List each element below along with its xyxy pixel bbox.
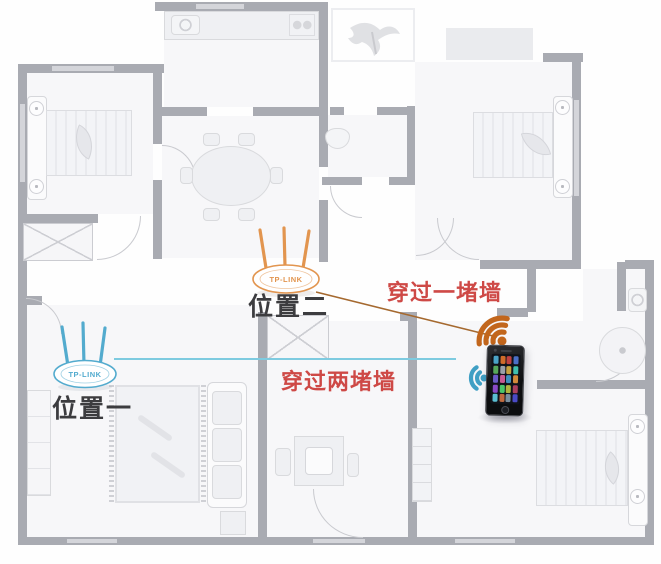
pillow (630, 419, 645, 434)
wall (527, 269, 536, 312)
wall (408, 312, 417, 542)
phone-earpiece (501, 349, 512, 352)
rug-fringe (201, 385, 206, 503)
wall (155, 107, 207, 116)
side-table (220, 511, 246, 535)
wall (537, 380, 647, 389)
chair (275, 448, 291, 476)
phone-app-grid (492, 356, 518, 403)
wall (258, 312, 267, 540)
wall (319, 200, 328, 262)
wall (480, 260, 578, 269)
plant (342, 10, 406, 65)
window (574, 100, 579, 196)
wall (153, 64, 162, 144)
tv-cabinet (27, 390, 51, 496)
wall (377, 107, 408, 115)
washbasin (628, 288, 647, 312)
sofa-cushion (212, 428, 242, 462)
label-through-one-wall: 穿过一堵墙 (387, 275, 502, 307)
floor-plan-diagram: TP-LINK TP-LINK (0, 0, 661, 564)
dining-chair (238, 133, 255, 146)
stove (289, 14, 315, 36)
stool (347, 453, 359, 477)
pillow (29, 179, 44, 194)
window (313, 539, 365, 543)
dining-table (191, 146, 271, 206)
wall (322, 177, 362, 185)
phone-camera (494, 349, 497, 352)
pillow (630, 489, 645, 504)
phone-home-button (501, 405, 509, 413)
wall (18, 214, 98, 223)
pillow (29, 101, 44, 116)
label-position-2: 位置二 (248, 287, 329, 323)
window (20, 104, 25, 182)
dining-chair (238, 208, 255, 221)
wall (497, 308, 528, 317)
wall (330, 107, 344, 115)
door-arc (26, 298, 62, 334)
dining-chair (203, 208, 220, 221)
pillow (555, 179, 570, 194)
door-arc (330, 186, 362, 218)
wall (153, 180, 162, 259)
sofa-cushion (212, 465, 242, 499)
phone-screen (490, 354, 520, 405)
window (52, 66, 114, 71)
door-arc (97, 216, 141, 260)
wall (407, 106, 415, 185)
wall (617, 262, 626, 311)
window (455, 539, 515, 543)
wall (319, 2, 328, 115)
ac-unit (446, 28, 533, 60)
label-through-two-walls: 穿过两堵墙 (281, 364, 396, 396)
label-position-1: 位置一 (52, 389, 133, 425)
wardrobe (412, 428, 432, 502)
pillow (555, 100, 570, 115)
sofa-cushion (212, 391, 242, 425)
window (67, 539, 117, 543)
wall (253, 107, 328, 116)
window (196, 4, 244, 9)
desk-top (305, 447, 333, 475)
kitchen-sink (171, 15, 200, 35)
dining-chair (203, 133, 220, 146)
bathtub (599, 327, 646, 374)
smartphone (485, 345, 525, 417)
dining-chair (270, 167, 283, 184)
dining-chair (180, 167, 193, 184)
floor-plan (0, 0, 661, 564)
closet (23, 223, 93, 261)
